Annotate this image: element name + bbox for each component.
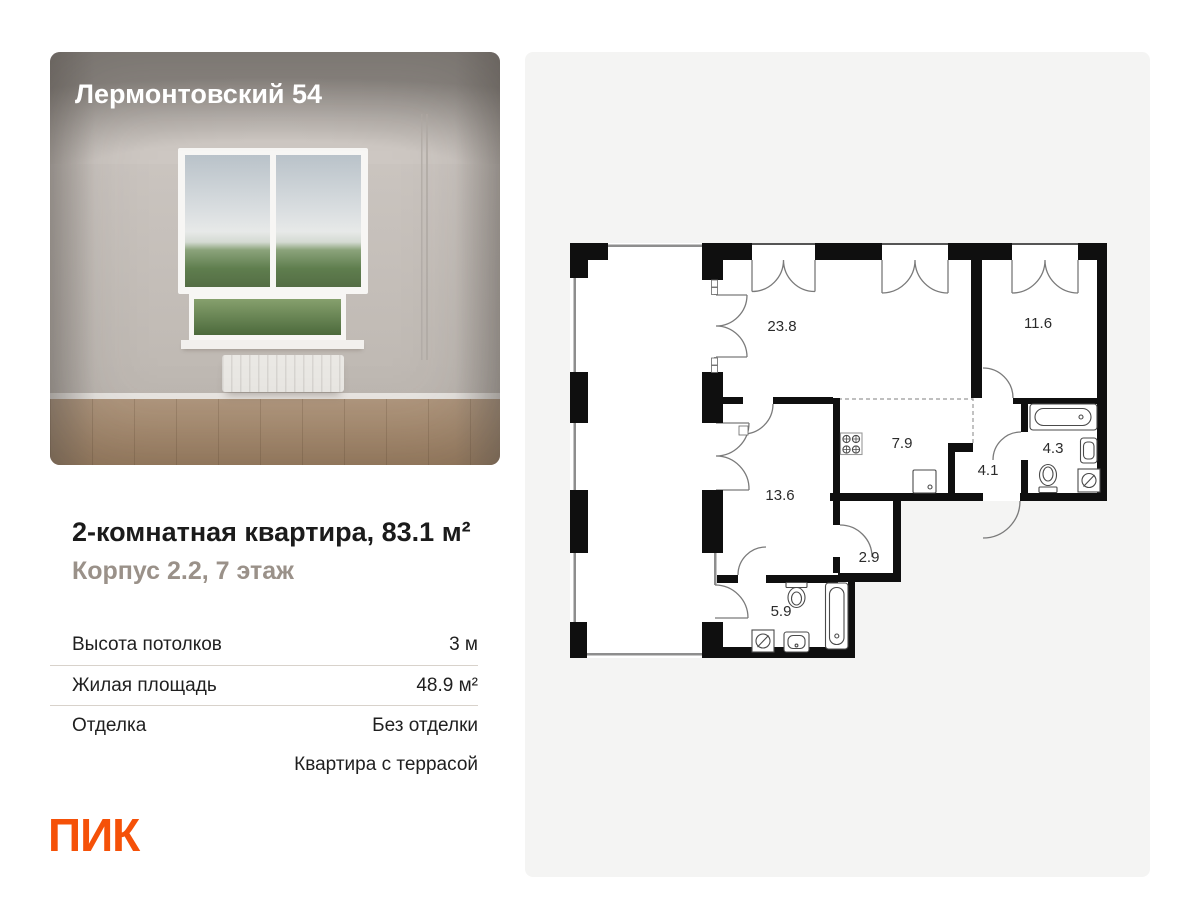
stove-icon <box>841 433 863 455</box>
room-area-label: 5.9 <box>771 603 792 620</box>
room-area-label: 11.6 <box>1024 315 1052 332</box>
pik-logo: ПИК <box>48 812 139 858</box>
spec-value: 3 м <box>449 634 478 656</box>
window-sill-lines <box>752 243 1078 245</box>
spec-row-terrace: Квартира с террасой <box>50 745 478 785</box>
spec-label: Отделка <box>72 715 146 737</box>
entry-door <box>983 501 1020 538</box>
spec-row-finishing: Отделка Без отделки <box>50 705 478 745</box>
room-area-label: 4.3 <box>1043 440 1064 457</box>
spec-value: Без отделки <box>372 715 478 737</box>
washing-machine-icon <box>1078 469 1100 492</box>
room-area-label: 4.1 <box>978 462 999 479</box>
room-area-label: 2.9 <box>859 549 880 566</box>
listing-card: Лермонтовский 54 2-комнатная квартира, 8… <box>0 0 1200 900</box>
floor-plan-panel: 23.8 11.6 7.9 4.1 4.3 13.6 2.9 5.9 <box>525 52 1150 877</box>
room-area-label: 23.8 <box>767 318 796 335</box>
bathroom-sink-icon <box>1081 438 1098 463</box>
photo-vignette <box>50 52 500 465</box>
room-area-label: 13.6 <box>765 487 794 504</box>
spec-label: Жилая площадь <box>72 675 217 697</box>
listing-title: 2-комнатная квартира, 83.1 м² <box>72 517 471 548</box>
spec-value: Квартира с террасой <box>294 754 478 776</box>
listing-subtitle: Корпус 2.2, 7 этаж <box>72 557 294 586</box>
specs-table: Высота потолков 3 м Жилая площадь 48.9 м… <box>50 625 478 785</box>
floor-plan: 23.8 11.6 7.9 4.1 4.3 13.6 2.9 5.9 <box>525 52 1150 877</box>
apartment-photo: Лермонтовский 54 <box>50 52 500 465</box>
bathtub-2-icon <box>826 583 849 649</box>
kitchen-sink-icon <box>913 470 936 493</box>
spec-row-living-area: Жилая площадь 48.9 м² <box>50 665 478 705</box>
bathtub-icon <box>1030 404 1097 430</box>
spec-value: 48.9 м² <box>416 675 478 697</box>
washing-machine-2-icon <box>752 630 774 652</box>
project-title: Лермонтовский 54 <box>75 79 322 110</box>
spec-row-ceiling-height: Высота потолков 3 м <box>50 625 478 665</box>
spec-label: Высота потолков <box>72 634 222 656</box>
room-area-label: 7.9 <box>892 435 913 452</box>
sink-2-icon <box>784 632 809 652</box>
toilet-icon <box>1039 465 1057 493</box>
